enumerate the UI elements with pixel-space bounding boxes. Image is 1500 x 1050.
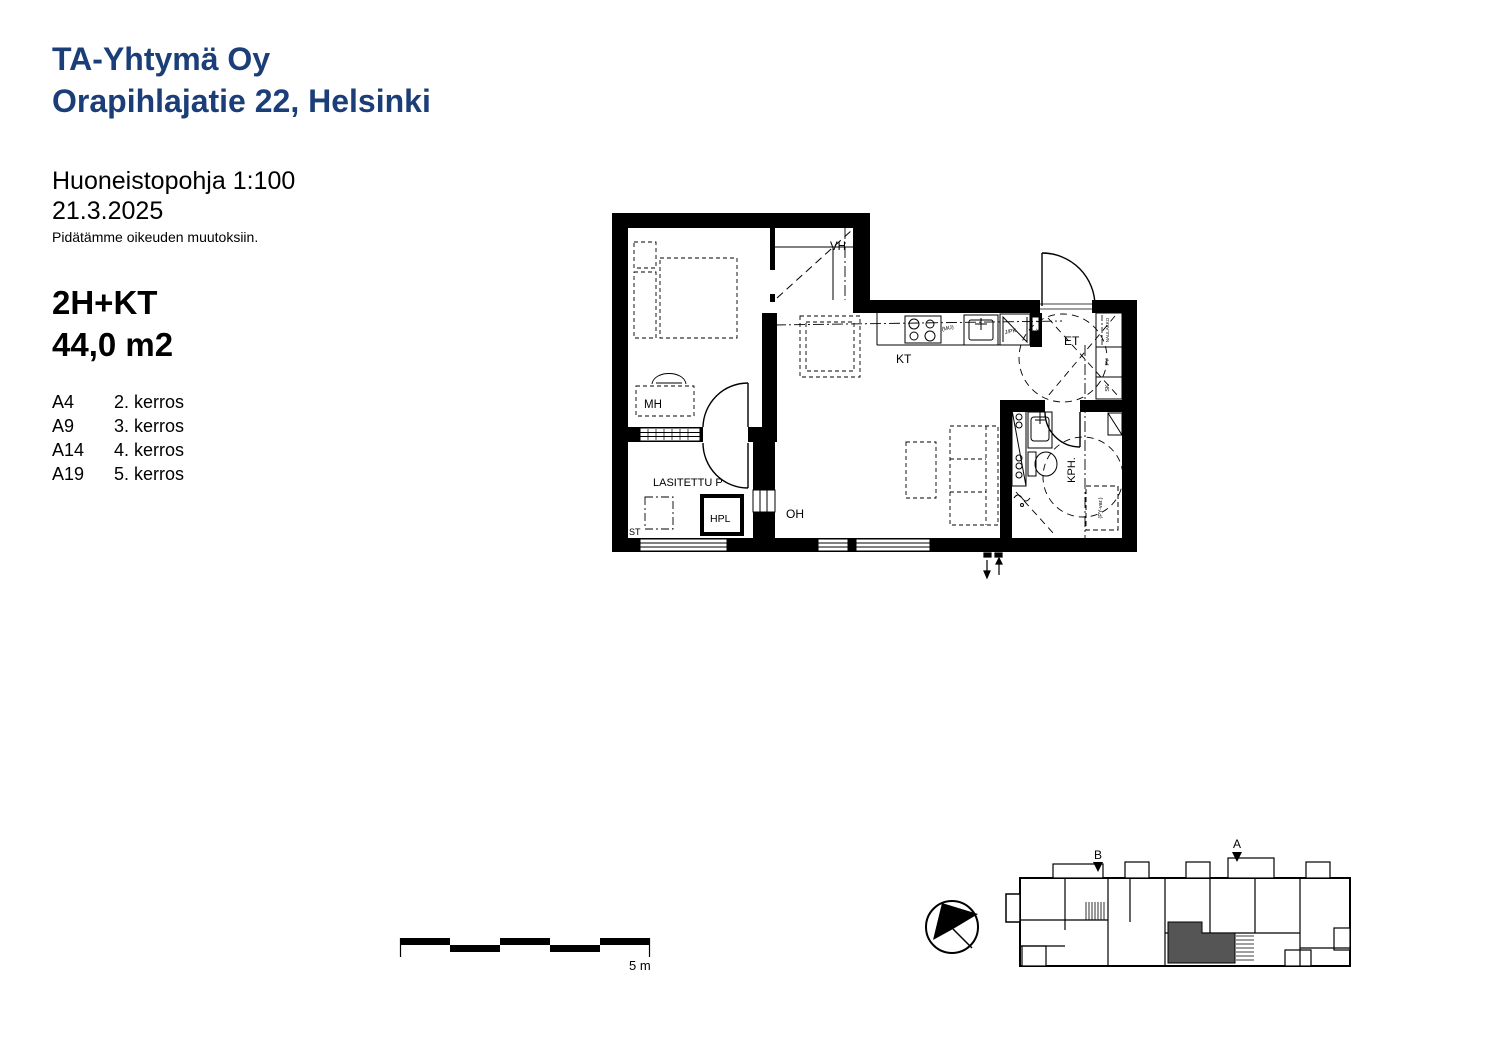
washbasin-icon: [1028, 412, 1052, 448]
nightstand: [634, 242, 656, 268]
unit-code: A9: [52, 416, 114, 437]
label-st: ST: [629, 527, 641, 537]
label-sk: SK: [1105, 384, 1111, 392]
unit-code: A19: [52, 464, 114, 485]
label-rk: RK: [1036, 328, 1042, 336]
letterhead: TA-Yhtymä Oy Orapihlajatie 22, Helsinki: [52, 38, 431, 122]
wardrobe: [634, 272, 656, 338]
plan-date: 21.3.2025: [52, 196, 295, 226]
label-kph: KPH.: [1066, 457, 1078, 483]
unit-floor: 2. kerros: [114, 392, 184, 413]
entrance-markers: B A: [1093, 838, 1242, 872]
label-kt: KT: [896, 352, 912, 366]
unit-floor: 4. kerros: [114, 440, 184, 461]
unit-floor: 5. kerros: [114, 464, 184, 485]
marker-a-label: A: [1233, 838, 1241, 851]
unit-list: A42. kerros A93. kerros A144. kerros A19…: [52, 392, 184, 485]
door-entrance: [1042, 253, 1095, 306]
chair: [652, 374, 686, 385]
apartment-type: 2H+KT: [52, 282, 184, 324]
label-et: ET: [1064, 334, 1080, 348]
kitchen-table-inner: [806, 322, 854, 371]
unit-code: A4: [52, 392, 114, 413]
section-lines: [767, 228, 1085, 538]
project-address: Orapihlajatie 22, Helsinki: [52, 80, 431, 122]
window-oh-bottom: [818, 539, 930, 551]
door-mh: [703, 383, 748, 427]
scale-bar-segments: [400, 938, 650, 952]
plan-meta: Huoneistopohja 1:100 21.3.2025 Pidätämme…: [52, 166, 295, 245]
unit-code: A14: [52, 440, 114, 461]
toilet-icon: [1028, 452, 1057, 476]
window-balcony-side: [753, 490, 775, 512]
sink-icon: [964, 315, 998, 345]
stove-icon: [905, 316, 941, 343]
label-naulakko: NAULAKKO: [1105, 317, 1110, 342]
apartment-area: 44,0 m2: [52, 324, 184, 366]
walls: [612, 213, 1137, 552]
balcony-box: [645, 497, 673, 529]
label-balcony: LASITETTU P: [653, 477, 723, 489]
kitchen-table: [800, 316, 860, 377]
disclaimer: Pidätämme oikeuden muutoksiin.: [52, 229, 295, 245]
label-jpk: J/PK: [1004, 328, 1017, 336]
document-page: TA-Yhtymä Oy Orapihlajatie 22, Helsinki …: [0, 0, 1500, 1050]
label-py: PY: [1105, 358, 1111, 366]
unit-floor: 3. kerros: [114, 416, 184, 437]
window-balcony-bottom: [640, 539, 727, 551]
label-oh: OH: [786, 507, 804, 521]
compass-icon: [918, 893, 990, 965]
pipe-shaft-icon: [1012, 410, 1026, 486]
door-kph: [1045, 412, 1080, 447]
scale-bar-label: 5 m: [629, 958, 651, 973]
label-mh: MH: [644, 399, 662, 411]
marker-b-label: B: [1094, 848, 1102, 862]
plan-type: Huoneistopohja 1:100: [52, 166, 295, 196]
label-py-var: (PY-var.): [1098, 497, 1104, 518]
sofa: [950, 426, 998, 525]
scale-bar: 5 m: [395, 925, 665, 975]
entrance-threshold: [1040, 304, 1092, 309]
windows: [640, 304, 1092, 551]
vent-arrows-icon: [984, 553, 1002, 578]
bed: [660, 258, 737, 338]
window-mh: [640, 428, 700, 441]
label-hpl: HPL: [710, 513, 731, 525]
towel-unit-icon: [1108, 413, 1122, 435]
company-name: TA-Yhtymä Oy: [52, 38, 431, 80]
floor-plan: VH KT ET OH MH KPH. LASITETTU P HPL ST (…: [600, 200, 1150, 585]
dining-table: [906, 442, 936, 498]
label-mu: (MU): [941, 325, 954, 333]
label-vh: VH: [830, 241, 846, 253]
key-plan: B A: [1005, 838, 1370, 988]
apartment-info: 2H+KT 44,0 m2 A42. kerros A93. kerros A1…: [52, 282, 184, 485]
